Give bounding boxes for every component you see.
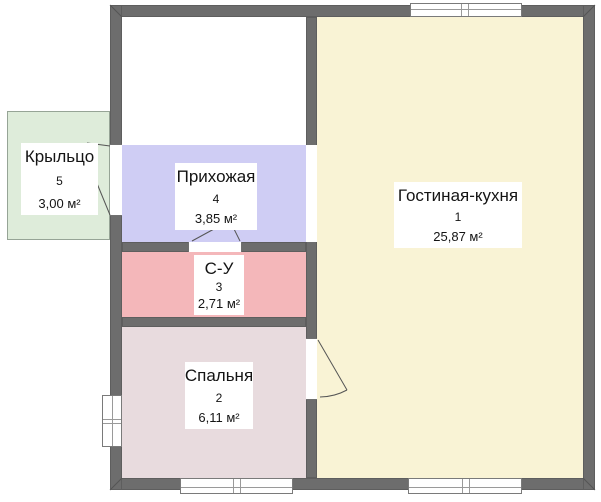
interior-wall-vertical — [306, 17, 317, 478]
window-bedroom-left — [102, 395, 122, 447]
room-label-bathroom: С-У 3 2,71 м² — [194, 255, 244, 315]
room-unlabeled — [122, 17, 306, 145]
interior-wall-bathroom-bedroom — [122, 317, 306, 327]
outer-wall-top — [110, 5, 595, 17]
room-number: 5 — [56, 175, 63, 188]
bathroom-door-opening — [188, 242, 242, 252]
room-area: 6,11 м² — [198, 411, 239, 425]
room-area: 3,85 м² — [195, 212, 237, 226]
room-label-bedroom: Спальня 2 6,11 м² — [185, 362, 253, 429]
room-label-porch: Крыльцо 5 3,00 м² — [21, 143, 98, 215]
room-number: 3 — [216, 281, 223, 294]
window-living-top — [410, 3, 522, 17]
room-name: Прихожая — [177, 167, 256, 187]
window-bedroom-bottom — [180, 478, 293, 494]
room-name: Гостиная-кухня — [398, 186, 518, 206]
floor-plan: Крыльцо 5 3,00 м² Прихожая 4 3,85 м² С-У… — [0, 0, 601, 502]
porch-door-opening — [110, 144, 122, 216]
room-area: 25,87 м² — [433, 230, 482, 244]
room-label-hallway: Прихожая 4 3,85 м² — [175, 163, 257, 230]
room-name: Крыльцо — [25, 147, 94, 167]
room-name: С-У — [205, 259, 234, 279]
room-number: 4 — [213, 193, 220, 206]
hallway-living-passage — [306, 145, 317, 242]
bedroom-door-opening — [306, 338, 317, 400]
room-area: 3,00 м² — [38, 197, 80, 211]
room-name: Спальня — [185, 366, 253, 386]
room-area: 2,71 м² — [198, 297, 240, 311]
window-living-bottom — [408, 478, 522, 494]
room-number: 1 — [455, 211, 462, 224]
room-label-living-kitchen: Гостиная-кухня 1 25,87 м² — [394, 182, 522, 248]
room-number: 2 — [216, 392, 223, 405]
outer-wall-right — [583, 5, 595, 490]
